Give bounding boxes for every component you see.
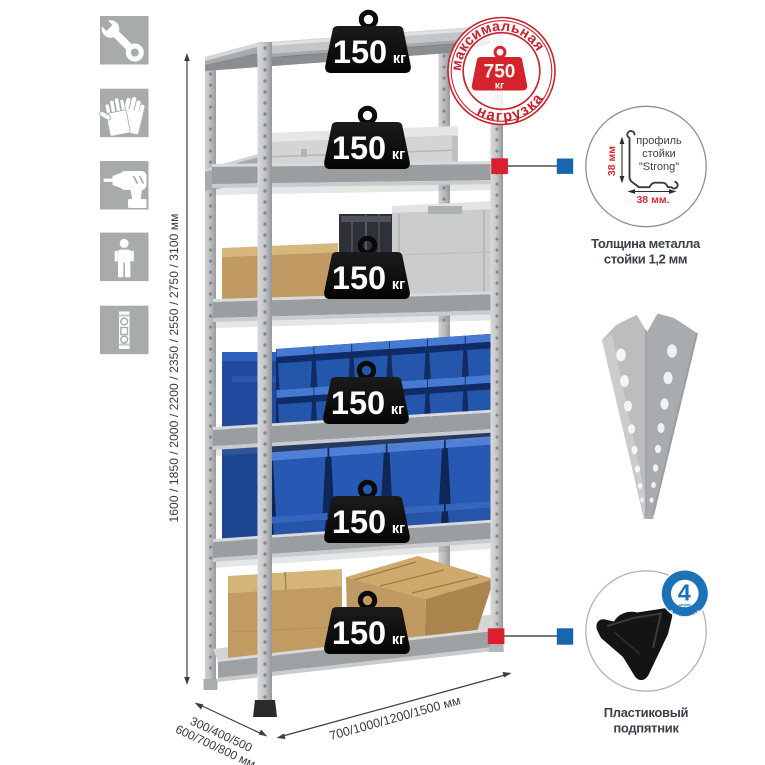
svg-text:подпятник: подпятник — [613, 721, 679, 736]
svg-text:1600 / 1850 / 2000 / 2200 / 23: 1600 / 1850 / 2000 / 2200 / 2350 / 2550 … — [167, 213, 181, 522]
svg-text:профиль: профиль — [636, 135, 682, 147]
svg-text:Пластиковый: Пластиковый — [604, 705, 689, 720]
svg-text:38 мм: 38 мм — [606, 146, 618, 176]
svg-text:штуки: штуки — [678, 602, 691, 607]
svg-text:стойки 1,2 мм: стойки 1,2 мм — [604, 252, 687, 267]
svg-text:кг: кг — [393, 51, 406, 67]
svg-text:Толщина металла: Толщина металла — [591, 236, 701, 251]
svg-text:стойки: стойки — [642, 148, 676, 160]
svg-text:"Strong": "Strong" — [639, 161, 679, 173]
svg-text:38 мм.: 38 мм. — [636, 194, 669, 206]
svg-text:150: 150 — [333, 34, 387, 70]
svg-text:кг: кг — [495, 80, 505, 92]
